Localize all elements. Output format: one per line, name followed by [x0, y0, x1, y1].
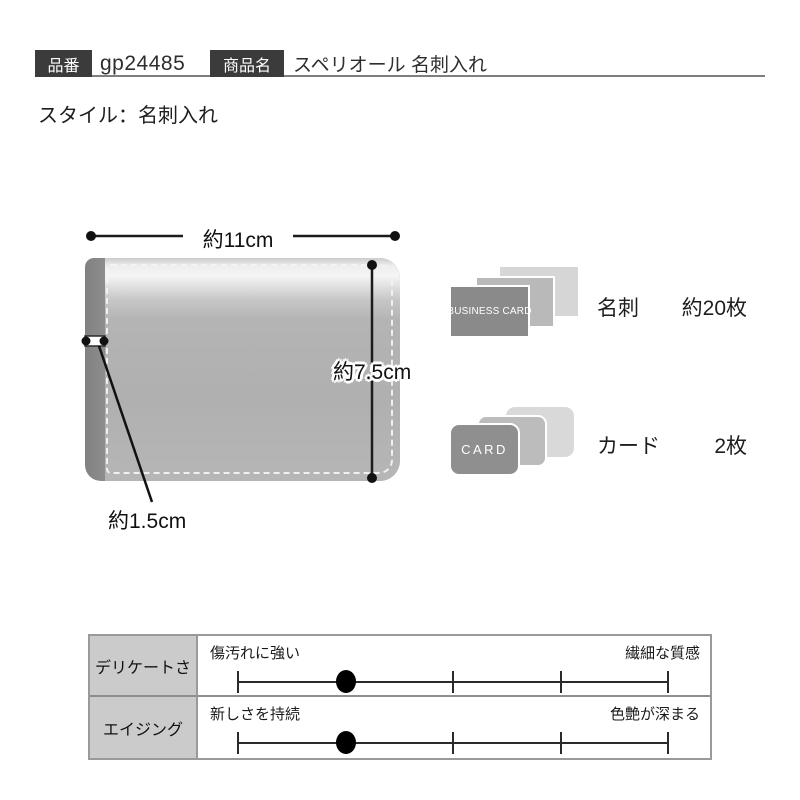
product-spec-page: 品番 gp24485 商品名 スペリオール 名刺入れ スタイル：名刺入れ 約11…: [0, 0, 800, 800]
scale-tick: [237, 732, 239, 754]
delicacy-scale-track: [238, 670, 668, 694]
aging-right-label: 色艶が深まる: [610, 703, 700, 724]
scale-tick: [452, 732, 454, 754]
row-scale-delicacy: 傷汚れに強い 繊細な質感: [198, 636, 710, 697]
dimension-lines: [0, 0, 800, 560]
row-scale-aging: 新しさを持続 色艶が深まる: [198, 697, 710, 758]
row-header-delicacy: デリケートさ: [90, 636, 198, 697]
aging-scale-track: [238, 731, 668, 755]
scale-tick: [560, 732, 562, 754]
width-dimension-label: 約11cm: [183, 224, 293, 254]
height-dimension-label: 約7.5cm: [333, 356, 411, 386]
scale-tick: [560, 671, 562, 693]
scale-tick: [667, 732, 669, 754]
property-scale-table: デリケートさ 傷汚れに強い 繊細な質感 エイジング 新しさを持続 色艶が深まる: [88, 634, 712, 760]
row-header-aging: エイジング: [90, 697, 198, 758]
aging-left-label: 新しさを持続: [210, 703, 300, 724]
delicacy-scale-marker: [336, 670, 356, 693]
thickness-dimension-label: 約1.5cm: [108, 505, 186, 535]
scale-tick: [237, 671, 239, 693]
aging-scale-marker: [336, 731, 356, 754]
scale-tick: [667, 671, 669, 693]
scale-tick: [452, 671, 454, 693]
delicacy-right-label: 繊細な質感: [625, 642, 700, 663]
delicacy-left-label: 傷汚れに強い: [210, 642, 300, 663]
